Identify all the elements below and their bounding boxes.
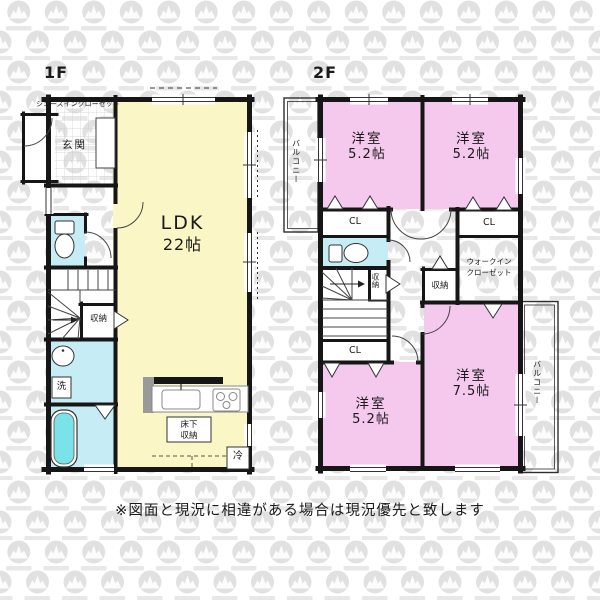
shoes-closet-label: シューズインクローゼット (36, 100, 120, 108)
bedroom-r-label: 洋室 7.5帖 (422, 368, 521, 400)
entrance-label: 玄関 (62, 139, 87, 152)
storage-stairs-label: 収納 (371, 273, 380, 288)
floor2-title: 2F (313, 63, 337, 82)
bedroom-tr-label: 洋室 5.2帖 (422, 131, 521, 163)
floorplan-image: 1F 2F シューズインクローゼット 玄関 LDK 22帖 収納 洗 床下 収納… (0, 0, 600, 600)
toilet-bowl-icon-2f (344, 244, 368, 263)
balcony-right-label: バルコニー (532, 360, 542, 405)
floor1-title: 1F (44, 63, 68, 82)
underfloor-storage-label: 床下 収納 (167, 420, 211, 443)
shoe-cabinet-icon (96, 118, 115, 168)
ldk-label: LDK 22帖 (113, 212, 252, 254)
room-ldk (113, 97, 252, 472)
bedroom-tl-label: 洋室 5.2帖 (317, 131, 417, 163)
fridge-label: 冷 (227, 451, 249, 463)
balcony-left-label: バルコニー (291, 139, 301, 184)
toilet-bowl-icon-1f (55, 234, 74, 258)
washbasin-icon (52, 346, 74, 366)
disclaimer-text: ※図面と現況に相違がある場合は現況優先と致します (0, 503, 600, 520)
closet-tl-label: CL (322, 216, 388, 227)
wic-label: ウォークイン クローゼット (457, 256, 521, 279)
closet-bl-label: CL (322, 345, 388, 356)
toilet-tank-icon-2f (329, 245, 342, 262)
closet-tr-label: CL (457, 217, 521, 228)
storage-hall-label: 収納 (423, 281, 457, 291)
laundry-label: 洗 (52, 381, 71, 392)
front-door-opening (44, 188, 54, 214)
bedroom-bl-label: 洋室 5.2帖 (320, 396, 422, 428)
washbasin-faucet-icon (62, 349, 65, 352)
toilet-tank-icon-1f (55, 221, 74, 234)
ldk-name: LDK (113, 212, 252, 235)
ldk-size: 22帖 (113, 235, 252, 254)
bathtub-inner (54, 413, 74, 464)
storage-label-1f: 収納 (81, 314, 116, 324)
kitchen-half-wall (146, 377, 223, 384)
